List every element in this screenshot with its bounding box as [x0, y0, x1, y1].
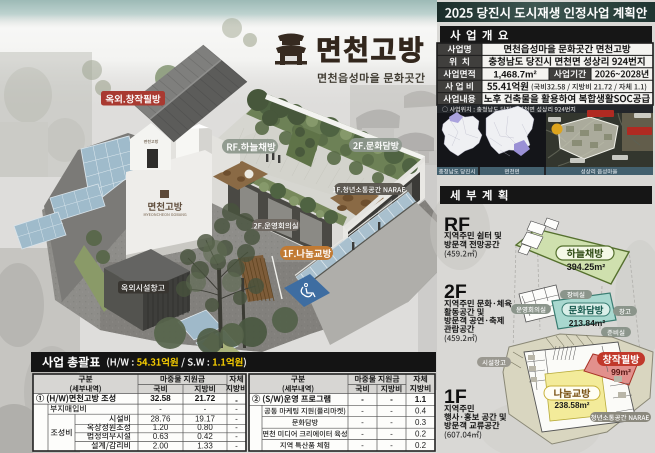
svg-text:0.2: 0.2 — [415, 441, 427, 450]
svg-text:-: - — [361, 418, 364, 427]
svg-text:-: - — [390, 441, 393, 450]
svg-text:99m²: 99m² — [611, 367, 631, 377]
svg-text:2.00: 2.00 — [153, 441, 169, 450]
svg-text:1.33: 1.33 — [197, 441, 213, 450]
svg-text:0.4: 0.4 — [415, 407, 427, 416]
svg-text:1,468.7m²: 1,468.7m² — [493, 69, 536, 80]
svg-text:394.25m²: 394.25m² — [567, 262, 606, 272]
svg-text:-: - — [361, 441, 364, 450]
svg-text:-: - — [361, 430, 364, 439]
svg-text:-: - — [390, 418, 393, 427]
svg-text:-: - — [361, 395, 364, 404]
svg-text:-: - — [361, 407, 364, 416]
svg-text:1F: 1F — [444, 386, 467, 408]
svg-text:1.1: 1.1 — [415, 395, 427, 404]
svg-text:213.84m²: 213.84m² — [569, 318, 606, 328]
svg-text:0.2: 0.2 — [415, 430, 427, 439]
svg-text:-: - — [390, 395, 393, 404]
svg-text:-: - — [159, 405, 162, 414]
svg-text:-: - — [235, 441, 238, 450]
svg-text:0.3: 0.3 — [415, 418, 427, 427]
svg-text:21.72: 21.72 — [195, 394, 216, 403]
svg-text:-: - — [390, 430, 393, 439]
svg-text:-: - — [390, 407, 393, 416]
svg-text:-: - — [235, 405, 238, 414]
svg-text:238.58m²: 238.58m² — [554, 401, 589, 410]
svg-text:-: - — [204, 405, 207, 414]
svg-text:2F: 2F — [444, 281, 467, 303]
svg-text:-: - — [235, 396, 238, 405]
svg-text:32.58: 32.58 — [150, 394, 171, 403]
